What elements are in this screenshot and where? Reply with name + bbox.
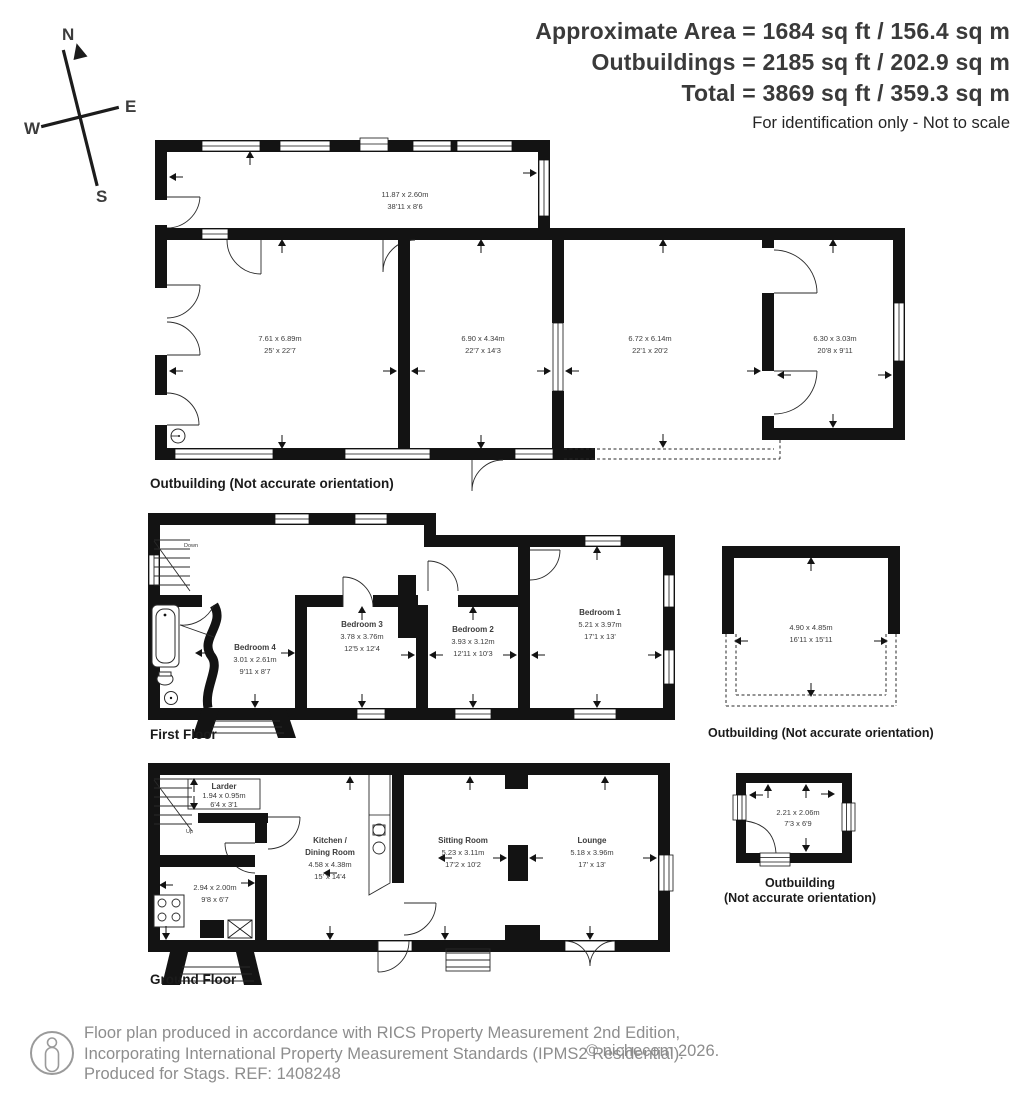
approximate-area-line: Approximate Area = 1684 sq ft / 156.4 sq…	[535, 16, 1010, 47]
room-dims-m: 3.78 x 3.76m	[340, 632, 383, 641]
room-dims-ft: 12'11 x 10'3	[453, 649, 492, 658]
room-name-bedroom-2: Bedroom 2	[452, 625, 494, 634]
nichecom-person-logo-icon	[29, 1030, 75, 1076]
room-dims-m: 4.58 x 4.38m	[308, 860, 351, 869]
outbuilding-mid-plan: 4.90 x 4.85m 16'11 x 15'11	[710, 538, 915, 728]
room-dims-m: 4.90 x 4.85m	[789, 623, 832, 632]
room-dims-m: 5.23 x 3.11m	[442, 848, 485, 857]
room-dims-m: 7.61 x 6.89m	[258, 334, 301, 343]
room-name-bedroom-3: Bedroom 3	[341, 620, 383, 629]
room-dims-ft: 17'2 x 10'2	[445, 860, 481, 869]
room-dims-ft: 9'8 x 6'7	[201, 895, 228, 904]
room-dims-m: 3.01 x 2.61m	[233, 655, 276, 664]
room-dims-m: 5.18 x 3.96m	[570, 848, 613, 857]
room-dims-ft: 9'11 x 8'7	[239, 667, 270, 676]
room-dims-ft: 12'5 x 12'4	[344, 644, 380, 653]
footer-copyright: © nichecom 2026.	[586, 1042, 719, 1061]
room-dims-m: 6.30 x 3.03m	[813, 334, 856, 343]
compass-north-label: N	[62, 25, 74, 44]
identification-note: For identification only - Not to scale	[535, 114, 1010, 133]
stairs-down-label: Down	[184, 543, 198, 549]
room-dims-ft: 38'11 x 8'6	[387, 202, 422, 211]
room-name-kitchen-line2: Dining Room	[305, 848, 355, 857]
room-dims-m: 11.87 x 2.60m	[382, 190, 429, 199]
outbuilding-small-caption-line1: Outbuilding	[695, 876, 905, 890]
outbuilding-mid-caption: Outbuilding (Not accurate orientation)	[708, 726, 934, 740]
outbuilding-small-plan: 2.21 x 2.06m 7'3 x 6'9	[728, 765, 873, 873]
footer-line1: Floor plan produced in accordance with R…	[84, 1023, 684, 1044]
ground-floor-caption: Ground Floor	[150, 972, 236, 987]
room-dims-m: 1.94 x 0.95m	[202, 791, 245, 800]
room-dims-m: 2.94 x 2.00m	[193, 883, 236, 892]
room-name-bedroom-1: Bedroom 1	[579, 608, 621, 617]
outbuilding-top-plan: 11.87 x 2.60m 38'11 x 8'6 7.61 x 6.89m 2…	[120, 133, 910, 493]
room-dims-m: 3.93 x 3.12m	[451, 637, 494, 646]
room-dims-ft: 22'7 x 14'3	[465, 346, 501, 355]
room-dims-ft: 17'1 x 13'	[584, 632, 616, 641]
room-name-lounge: Lounge	[578, 836, 607, 845]
outbuilding-top-caption: Outbuilding (Not accurate orientation)	[150, 476, 394, 491]
first-floor-plan: Down Bedroom 4 3.01 x 2.61m 9'11 x 8'7 B…	[140, 505, 690, 750]
outbuilding-small-caption-line2: (Not accurate orientation)	[695, 891, 905, 905]
footer-line3: Produced for Stags. REF: 1408248	[84, 1064, 684, 1085]
first-floor-caption: First Floor	[150, 727, 217, 742]
room-name-bedroom-4: Bedroom 4	[234, 643, 276, 652]
room-dims-ft: 15' x 14'4	[314, 872, 346, 881]
ground-floor-plan: Up Larder	[140, 755, 690, 1005]
room-name-kitchen-line1: Kitchen /	[313, 836, 348, 845]
outbuildings-area-line: Outbuildings = 2185 sq ft / 202.9 sq m	[535, 47, 1010, 78]
room-dims-ft: 6'4 x 3'1	[210, 800, 237, 809]
room-name-larder: Larder	[212, 782, 237, 791]
room-dims-ft: 25' x 22'7	[264, 346, 296, 355]
room-dims-m: 2.21 x 2.06m	[776, 808, 819, 817]
stairs-up-label: Up	[186, 829, 193, 835]
room-dims-ft: 17' x 13'	[578, 860, 606, 869]
compass-west-label: W	[24, 119, 41, 138]
room-name-sitting-room: Sitting Room	[438, 836, 488, 845]
room-dims-m: 6.90 x 4.34m	[461, 334, 504, 343]
room-dims-ft: 22'1 x 20'2	[632, 346, 668, 355]
room-dims-ft: 20'8 x 9'11	[817, 346, 852, 355]
area-summary: Approximate Area = 1684 sq ft / 156.4 sq…	[535, 16, 1010, 133]
room-dims-ft: 16'11 x 15'11	[789, 635, 832, 644]
room-dims-m: 5.21 x 3.97m	[578, 620, 621, 629]
room-dims-m: 6.72 x 6.14m	[628, 334, 671, 343]
compass-south-label: S	[96, 187, 107, 206]
total-area-line: Total = 3869 sq ft / 359.3 sq m	[535, 78, 1010, 109]
compass-east-label: E	[125, 97, 136, 116]
room-dims-ft: 7'3 x 6'9	[784, 819, 811, 828]
